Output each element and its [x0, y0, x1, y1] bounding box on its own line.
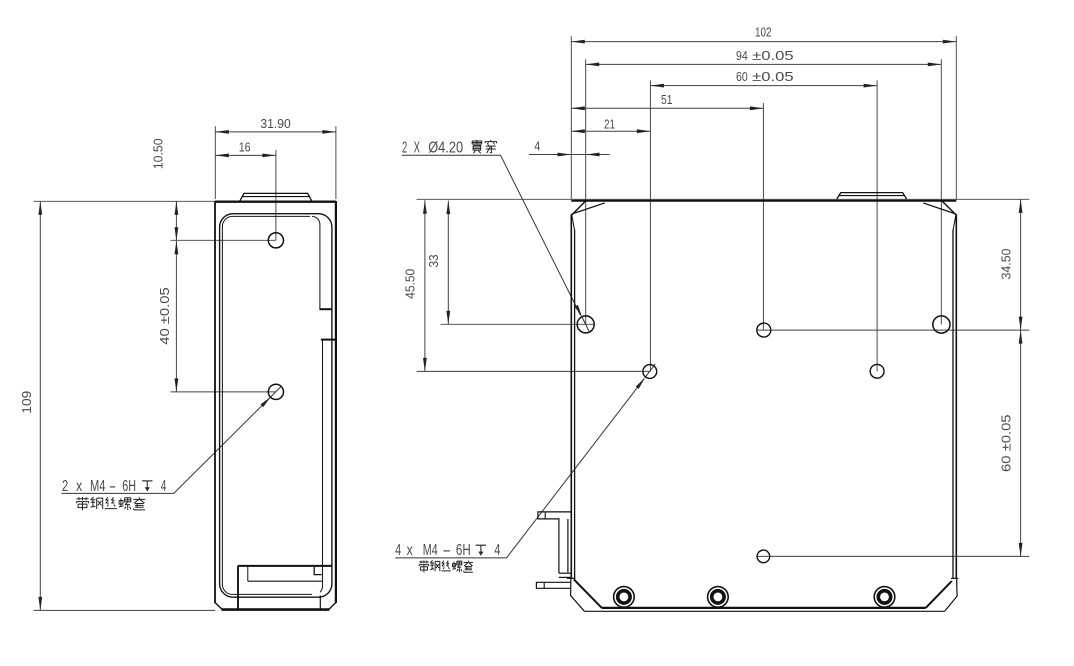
- svg-text:x: x: [407, 542, 413, 559]
- svg-text:60 ±0.05: 60 ±0.05: [998, 414, 1013, 472]
- svg-text:60: 60: [736, 69, 748, 84]
- svg-text:6H: 6H: [456, 542, 471, 559]
- svg-text:4: 4: [494, 542, 500, 559]
- svg-text:±0.05: ±0.05: [752, 48, 794, 63]
- svg-text:2: 2: [62, 478, 68, 495]
- svg-text:Ø4.20: Ø4.20: [428, 140, 463, 157]
- svg-text:34.50: 34.50: [998, 249, 1013, 280]
- svg-text:±0.05: ±0.05: [752, 69, 794, 84]
- svg-text:2: 2: [402, 140, 407, 157]
- svg-text:94: 94: [736, 48, 748, 63]
- svg-text:102: 102: [755, 25, 772, 40]
- svg-text:40 ±0.05: 40 ±0.05: [157, 287, 172, 345]
- svg-text:-: -: [109, 478, 116, 495]
- svg-text:4: 4: [395, 542, 401, 559]
- svg-text:6H: 6H: [122, 478, 136, 495]
- svg-text:51: 51: [661, 92, 673, 107]
- svg-text:10.50: 10.50: [151, 138, 166, 169]
- svg-text:x: x: [76, 478, 82, 495]
- svg-text:109: 109: [19, 391, 34, 414]
- svg-text:M4: M4: [90, 478, 105, 495]
- svg-text:33: 33: [426, 255, 441, 268]
- svg-text:-: -: [442, 542, 451, 559]
- svg-text:45.50: 45.50: [403, 269, 418, 299]
- svg-text:21: 21: [604, 117, 615, 132]
- svg-text:M4: M4: [423, 542, 438, 559]
- svg-text:16: 16: [239, 139, 251, 154]
- svg-text:31.90: 31.90: [260, 116, 291, 131]
- svg-text:4: 4: [161, 478, 167, 495]
- svg-text:4: 4: [534, 139, 540, 154]
- svg-text:X: X: [414, 140, 421, 157]
